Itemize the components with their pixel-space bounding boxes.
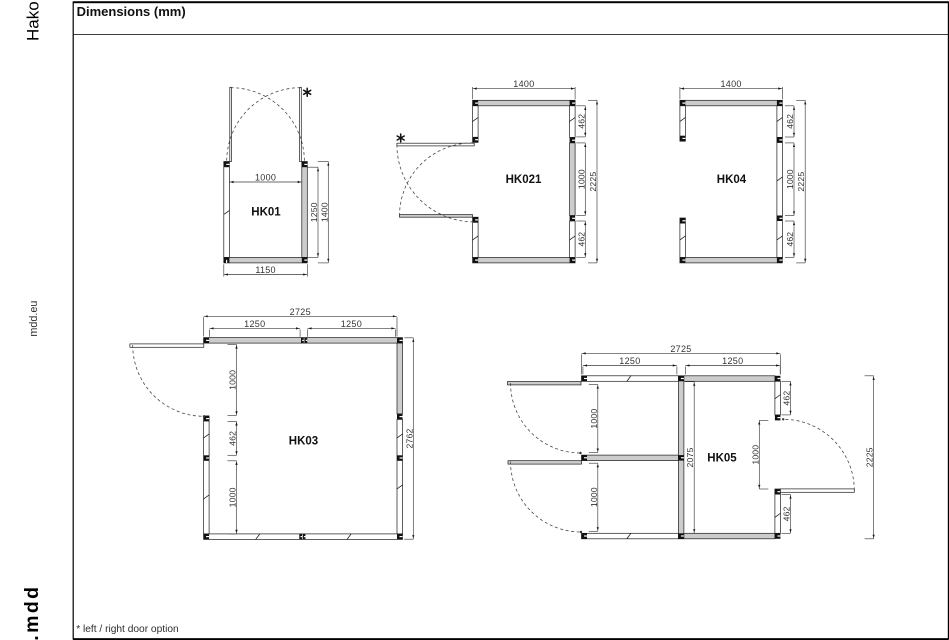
svg-text:1400: 1400: [720, 79, 741, 89]
svg-text:462: 462: [576, 232, 586, 247]
svg-text:1250: 1250: [619, 356, 640, 366]
svg-text:2762: 2762: [404, 429, 414, 449]
svg-text:462: 462: [785, 114, 795, 129]
svg-text:1000: 1000: [589, 487, 599, 507]
svg-text:2225: 2225: [796, 172, 806, 192]
svg-text:HK04: HK04: [717, 174, 747, 186]
svg-text:1250: 1250: [309, 202, 319, 222]
svg-text:1000: 1000: [228, 370, 238, 390]
svg-text:1150: 1150: [255, 265, 276, 275]
svg-text:462: 462: [576, 114, 586, 129]
svg-text:HK021: HK021: [506, 174, 542, 186]
svg-text:1000: 1000: [228, 487, 238, 507]
svg-text:Dimensions (mm): Dimensions (mm): [77, 4, 186, 19]
svg-text:1400: 1400: [319, 202, 329, 222]
svg-text:1250: 1250: [341, 319, 362, 329]
svg-text:1000: 1000: [785, 169, 795, 189]
svg-text:2225: 2225: [588, 172, 598, 192]
svg-text:462: 462: [782, 391, 792, 406]
svg-text:Hako: Hako: [24, 1, 43, 41]
svg-text:2725: 2725: [670, 344, 691, 354]
svg-text:HK03: HK03: [289, 435, 318, 447]
svg-text:HK01: HK01: [251, 207, 281, 219]
svg-text:462: 462: [228, 431, 238, 446]
svg-text:1000: 1000: [750, 445, 760, 465]
svg-text:* left / right door option: * left / right door option: [76, 624, 179, 635]
svg-text:mdd.eu: mdd.eu: [28, 301, 40, 337]
svg-text:1000: 1000: [576, 169, 586, 189]
svg-text:1000: 1000: [589, 409, 599, 429]
svg-text:462: 462: [782, 506, 792, 521]
svg-text:1400: 1400: [513, 79, 534, 89]
svg-text:1250: 1250: [244, 319, 265, 329]
svg-text:1000: 1000: [255, 173, 276, 183]
svg-text:2075: 2075: [685, 448, 695, 468]
svg-text:HK05: HK05: [707, 453, 737, 465]
svg-text:.mdd: .mdd: [21, 585, 43, 640]
svg-text:2725: 2725: [290, 307, 311, 317]
svg-text:462: 462: [785, 232, 795, 247]
svg-text:1250: 1250: [722, 356, 743, 366]
svg-text:2225: 2225: [865, 447, 875, 467]
